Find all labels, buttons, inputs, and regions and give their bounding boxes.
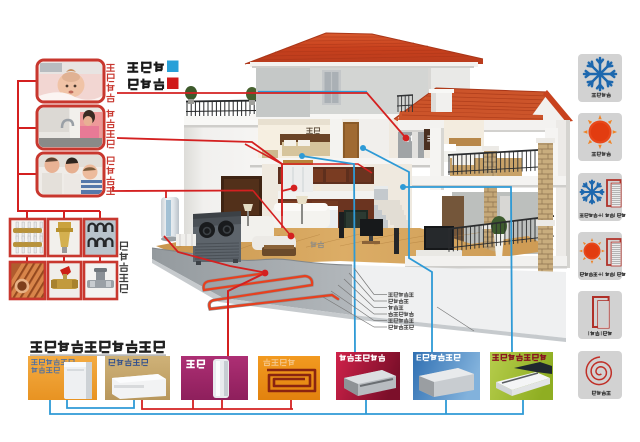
svg-text:E: E <box>416 353 422 363</box>
